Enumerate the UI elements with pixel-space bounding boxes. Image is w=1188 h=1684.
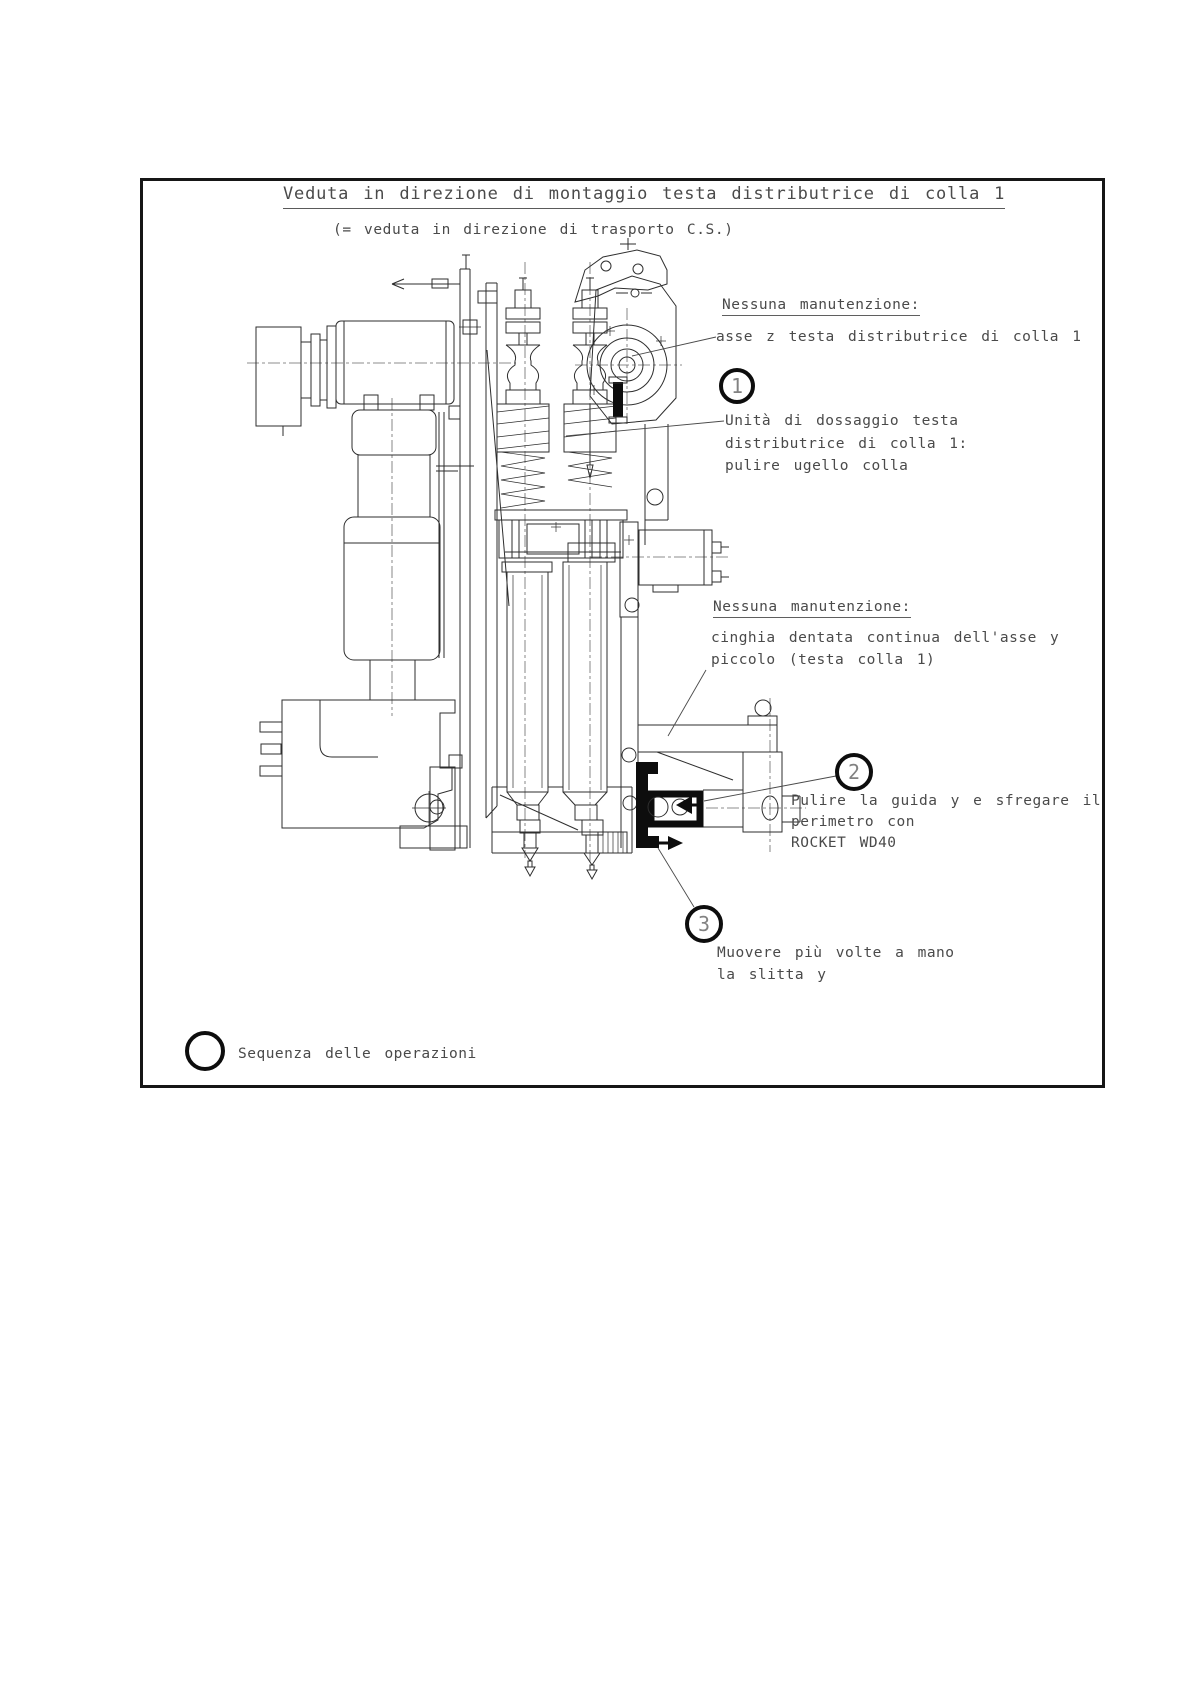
connector-box <box>260 700 455 828</box>
legend-circle-icon <box>185 1031 225 1071</box>
manifold-block <box>495 510 634 558</box>
z-axis-motor <box>256 321 454 436</box>
step-1-number: 1 <box>731 374 743 398</box>
step-2-number: 2 <box>848 760 860 784</box>
no-maintenance-2-heading: Nessuna manutenzione: <box>713 599 911 618</box>
dosing-valve-left <box>497 278 549 508</box>
y-guide-highlight <box>636 762 701 850</box>
step-2-badge: 2 <box>835 753 873 791</box>
step-3-number: 3 <box>698 912 710 936</box>
glue-nozzle-block <box>400 767 632 879</box>
step-3-badge: 3 <box>685 905 723 943</box>
right-arrow-icon <box>668 836 683 850</box>
step-2-text: Pulire la guida y e sfregare il perimetr… <box>791 791 1101 854</box>
step-1-badge: 1 <box>719 368 755 404</box>
y-axis-motor <box>639 530 729 592</box>
step-3-text: Muovere più volte a mano la slitta y <box>717 943 955 986</box>
no-maintenance-1-text: asse z testa distributrice di colla 1 <box>716 326 1082 348</box>
no-maintenance-2-text: cinghia dentata continua dell'asse y pic… <box>711 627 1059 671</box>
reference-pointer-arrow <box>392 279 460 289</box>
y-carriage <box>638 700 800 832</box>
step-1-text: Unità di dossaggio testa distributrice d… <box>725 410 968 478</box>
legend-label: Sequenza delle operazioni <box>238 1043 477 1065</box>
no-maintenance-1-heading: Nessuna manutenzione: <box>722 297 920 316</box>
glue-cylinders <box>502 543 615 820</box>
manual-page: Veduta in direzione di montaggio testa d… <box>0 0 1188 1684</box>
centerlines <box>247 262 806 868</box>
pneumatic-cylinder <box>344 395 474 700</box>
